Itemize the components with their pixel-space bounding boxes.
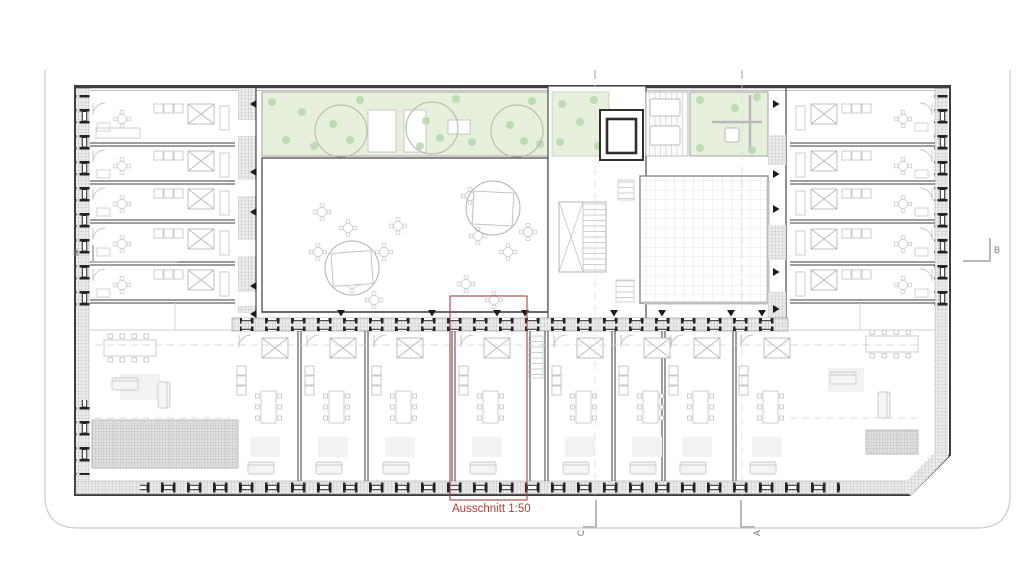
- lounger: [650, 126, 680, 145]
- section-label-b-left: B: [73, 248, 79, 258]
- elevator: [600, 110, 643, 160]
- west-gallery: [238, 86, 256, 318]
- small-stair-upper: [618, 180, 634, 200]
- section-marker-c: C: [576, 500, 596, 536]
- main-stair: [559, 202, 606, 272]
- roof-terrace: [646, 92, 768, 156]
- section-label-b-right: B: [994, 245, 1000, 255]
- floor-plan-drawing: B B C A Ausschnitt 1:50: [0, 0, 1024, 575]
- grid-room: [640, 176, 768, 303]
- section-marker-b-right: B: [963, 238, 1000, 261]
- circulation-core: [548, 86, 646, 330]
- terrace: [866, 430, 918, 454]
- section-label-c: C: [576, 529, 586, 536]
- common-hall: [262, 158, 548, 312]
- roof-garden: [262, 92, 548, 157]
- unit-stair: [529, 336, 543, 378]
- detail-callout-label: Ausschnitt 1:50: [452, 503, 531, 515]
- small-stair-lower: [616, 280, 634, 302]
- terrace: [92, 420, 238, 468]
- section-marker-a: A: [741, 500, 762, 536]
- section-line-ticks: [595, 70, 742, 79]
- floor-plan-page: B B C A Ausschnitt 1:50: [0, 0, 1024, 575]
- lounger: [650, 99, 680, 116]
- section-label-a: A: [752, 530, 762, 536]
